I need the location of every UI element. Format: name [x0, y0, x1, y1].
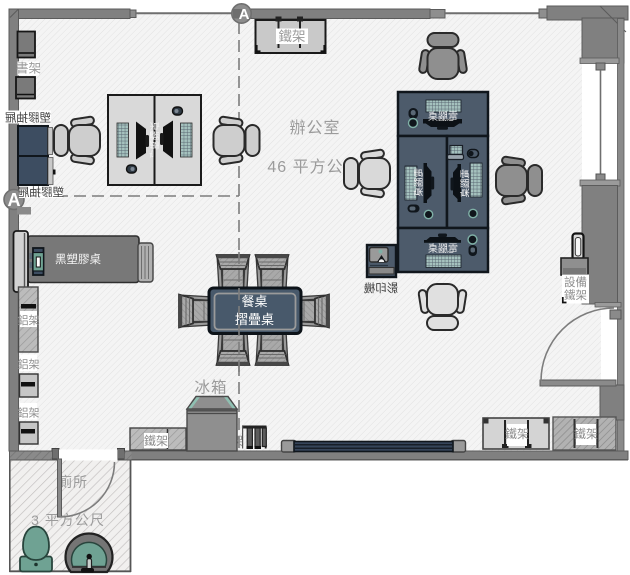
svg-text:設備: 設備: [564, 275, 587, 289]
svg-text:3 平方公尺: 3 平方公尺: [31, 512, 105, 528]
svg-text:冰箱: 冰箱: [194, 379, 227, 397]
svg-text:電腦桌: 電腦桌: [413, 168, 425, 197]
svg-text:廁所: 廁所: [58, 474, 88, 490]
svg-text:辦公室: 辦公室: [289, 119, 340, 137]
svg-text:鐵架: 鐵架: [144, 433, 168, 448]
svg-text:鐵架: 鐵架: [564, 288, 587, 302]
svg-text:塑膠抽屜: 塑膠抽屜: [5, 111, 51, 125]
svg-text:電腦桌: 電腦桌: [460, 169, 472, 198]
svg-text:黑塑膠桌: 黑塑膠桌: [55, 252, 101, 266]
svg-text:影印機: 影印機: [363, 281, 398, 295]
svg-text:鐵架: 鐵架: [574, 426, 598, 441]
svg-text:書架: 書架: [16, 62, 41, 76]
svg-text:鐵架: 鐵架: [279, 28, 306, 44]
svg-text:塑膠抽屜: 塑膠抽屜: [18, 185, 64, 199]
svg-text:鋁架: 鋁架: [18, 406, 40, 420]
svg-text:A: A: [239, 6, 250, 23]
svg-text:電腦桌: 電腦桌: [428, 110, 458, 123]
svg-text:鋁架: 鋁架: [18, 357, 40, 371]
svg-text:鋁架: 鋁架: [18, 313, 40, 327]
svg-text:鐵架: 鐵架: [505, 426, 529, 441]
svg-text:電腦桌: 電腦桌: [428, 242, 458, 255]
svg-text:餐桌: 餐桌: [241, 294, 267, 309]
svg-text:電腦桌: 電腦桌: [148, 121, 160, 150]
svg-text:摺疊桌: 摺疊桌: [235, 312, 274, 327]
